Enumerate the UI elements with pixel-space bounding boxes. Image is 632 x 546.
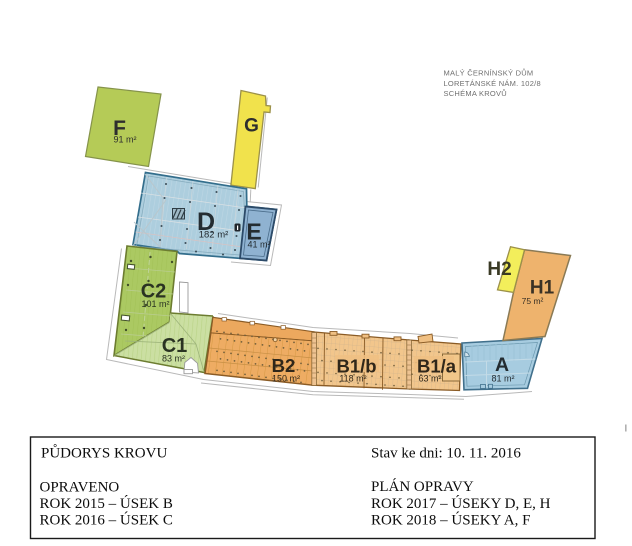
svg-text:ROK 2015 – ÚSEK B: ROK 2015 – ÚSEK B bbox=[40, 495, 173, 512]
svg-text:118 m²: 118 m² bbox=[339, 374, 366, 384]
svg-text:ROK 2017 – ÚSEKY D, E, H: ROK 2017 – ÚSEKY D, E, H bbox=[371, 495, 551, 512]
svg-text:83 m²: 83 m² bbox=[162, 354, 185, 364]
svg-text:H2: H2 bbox=[487, 259, 511, 280]
svg-text:ROK 2018 – ÚSEKY A, F: ROK 2018 – ÚSEKY A, F bbox=[371, 512, 530, 529]
svg-text:LORETÁNSKÉ NÁM. 102/8: LORETÁNSKÉ NÁM. 102/8 bbox=[444, 79, 541, 88]
svg-text:75 m²: 75 m² bbox=[522, 296, 544, 306]
svg-text:PŮDORYS KROVU: PŮDORYS KROVU bbox=[41, 444, 167, 462]
svg-text:Stav ke dni: 10. 11. 2016: Stav ke dni: 10. 11. 2016 bbox=[371, 446, 521, 462]
svg-text:182 m²: 182 m² bbox=[199, 230, 229, 241]
svg-text:63 m²: 63 m² bbox=[418, 374, 441, 384]
svg-text:MALÝ ČERNÍNSKÝ DŮM: MALÝ ČERNÍNSKÝ DŮM bbox=[444, 69, 534, 78]
svg-text:ROK 2016 – ÚSEK C: ROK 2016 – ÚSEK C bbox=[40, 512, 173, 529]
svg-text:91 m²: 91 m² bbox=[113, 135, 136, 145]
svg-text:81 m²: 81 m² bbox=[491, 374, 514, 384]
svg-text:PLÁN OPRAVY: PLÁN OPRAVY bbox=[371, 478, 474, 495]
svg-text:OPRAVENO: OPRAVENO bbox=[40, 480, 120, 496]
svg-text:SCHÉMA KROVŮ: SCHÉMA KROVŮ bbox=[444, 89, 507, 98]
svg-text:150 m²: 150 m² bbox=[272, 374, 300, 384]
svg-text:101 m²: 101 m² bbox=[141, 299, 169, 309]
svg-text:41 m²: 41 m² bbox=[247, 240, 270, 250]
svg-text:G: G bbox=[244, 116, 259, 137]
